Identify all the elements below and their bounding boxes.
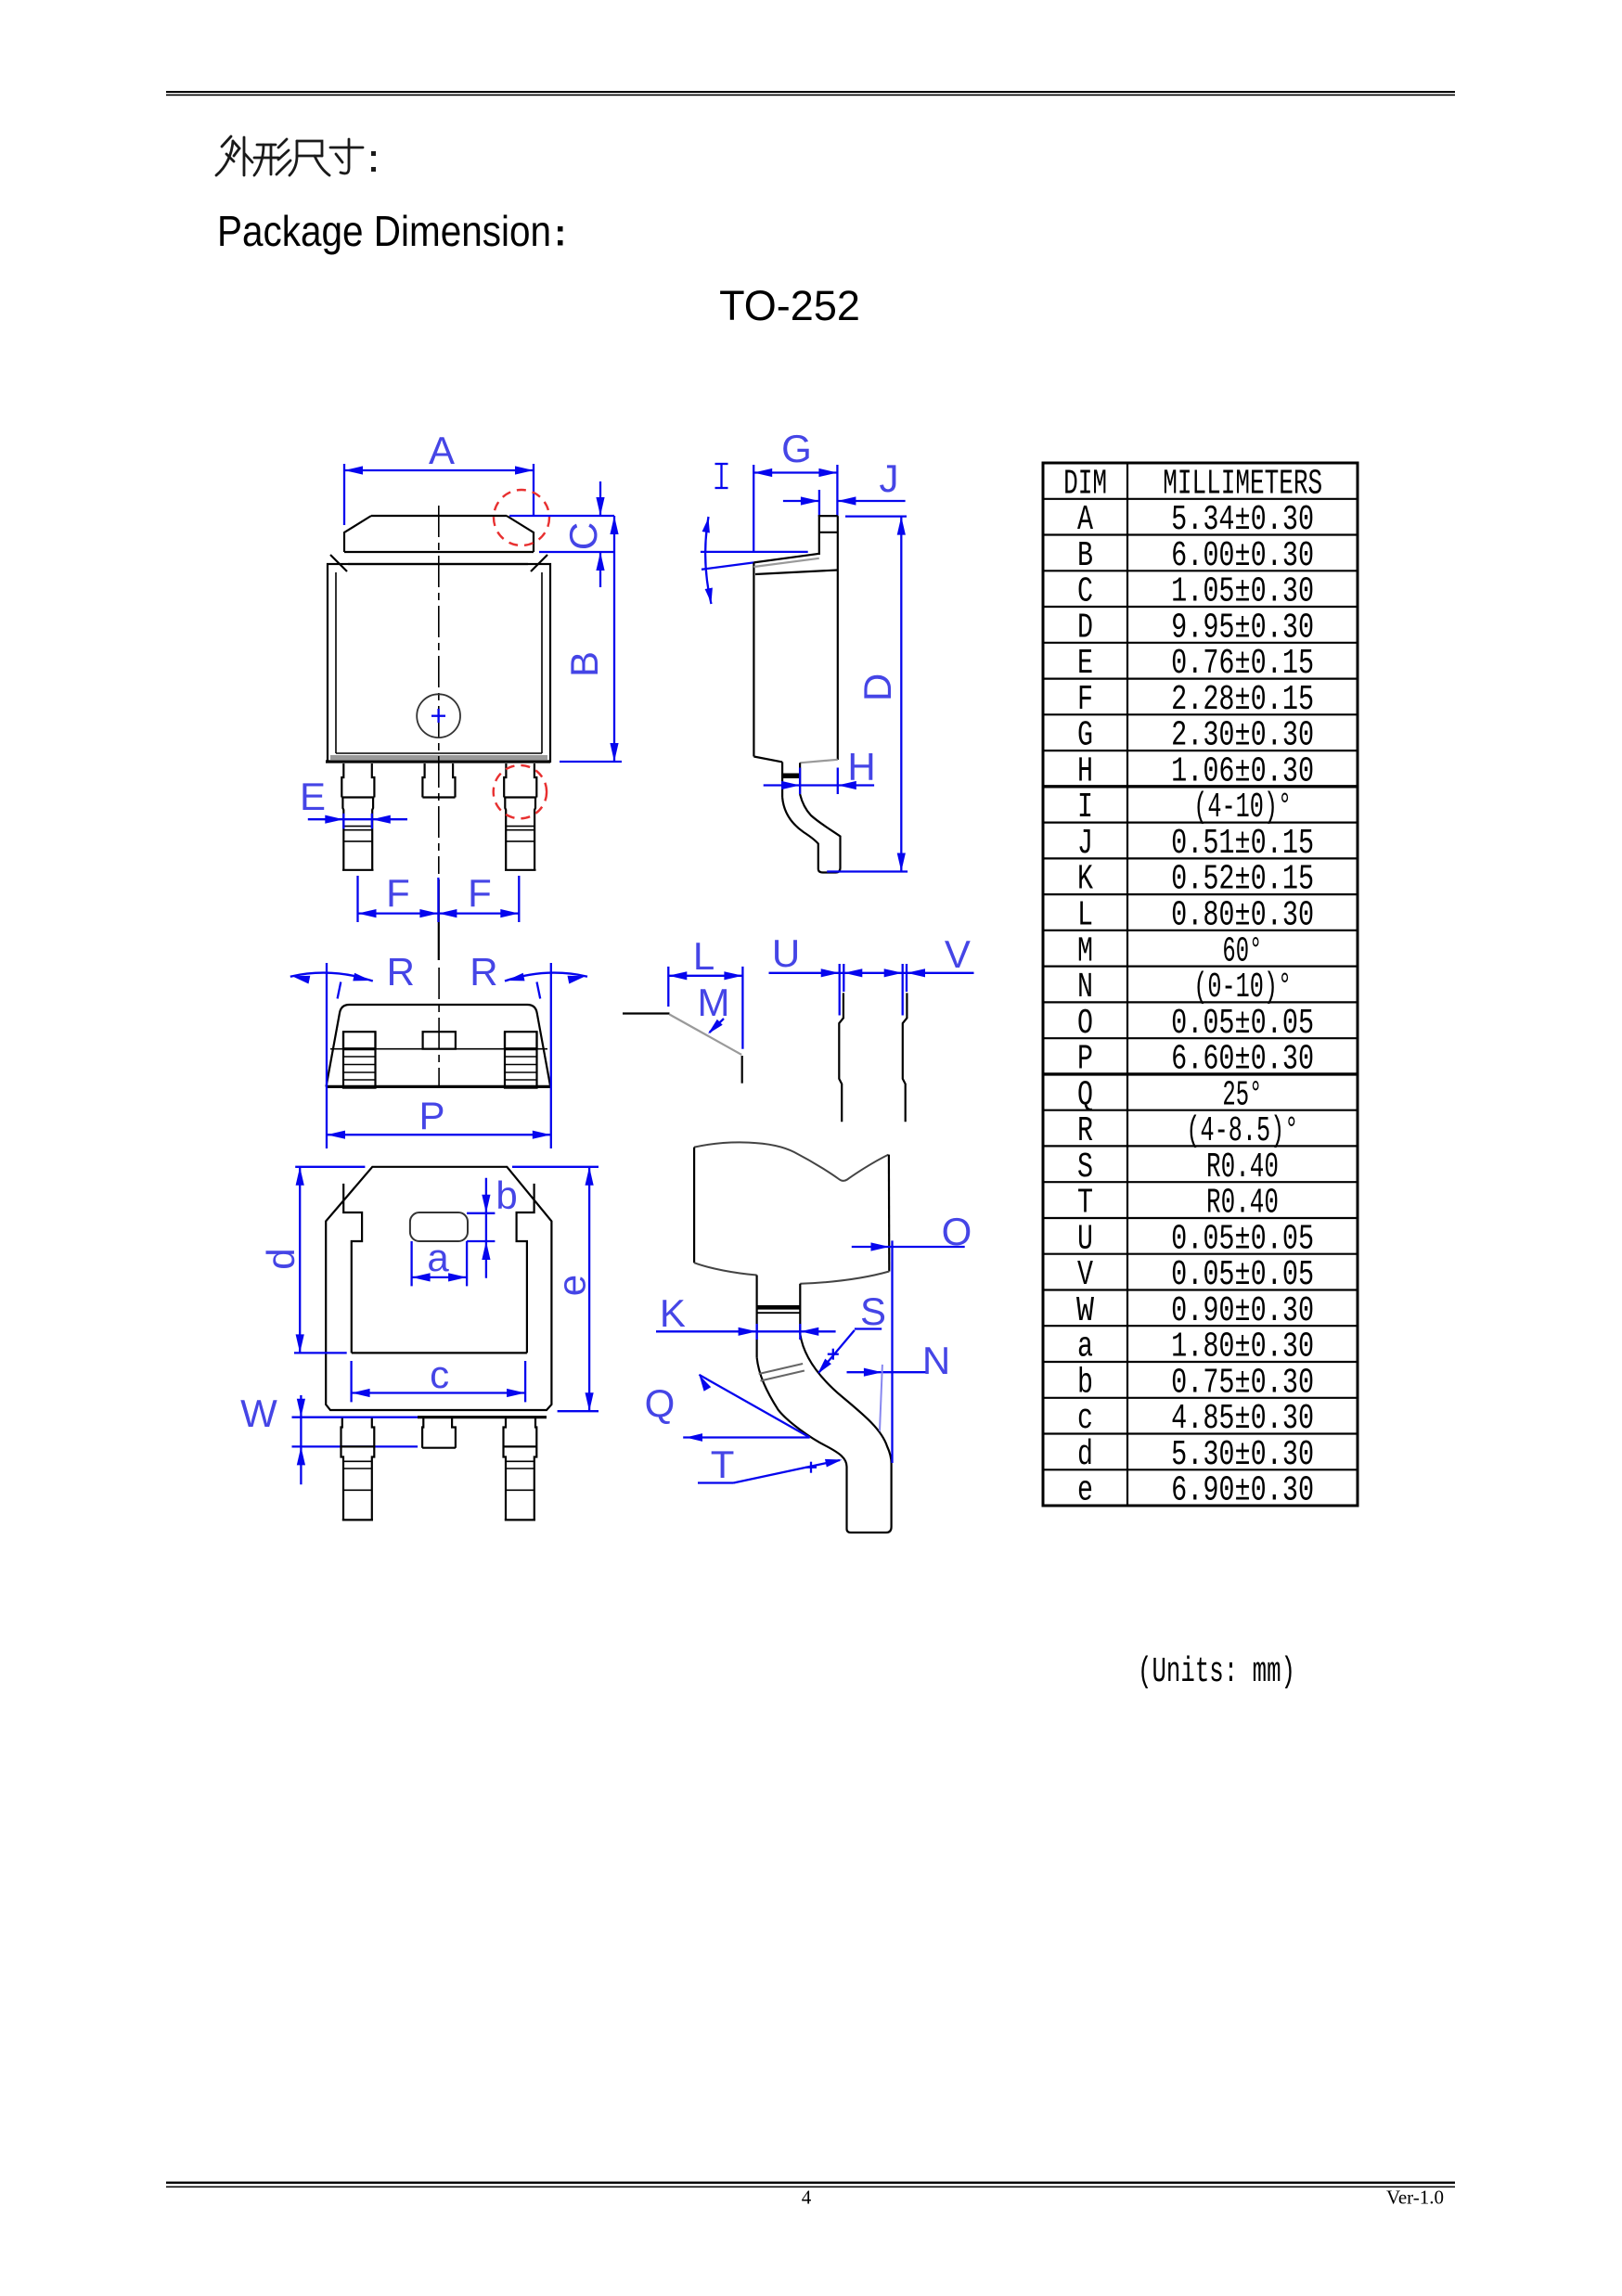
svg-text:D: D xyxy=(856,673,899,701)
svg-text:K: K xyxy=(660,1291,686,1335)
svg-text:G: G xyxy=(781,427,812,470)
svg-text:TO-252: TO-252 xyxy=(719,282,860,329)
svg-text:N: N xyxy=(1077,968,1093,1007)
svg-text:0.90±0.30: 0.90±0.30 xyxy=(1171,1291,1314,1331)
svg-text:D: D xyxy=(1077,608,1093,648)
svg-text:d: d xyxy=(259,1248,303,1269)
svg-text:5.34±0.30: 5.34±0.30 xyxy=(1171,500,1314,540)
svg-text:(Units: mm): (Units: mm) xyxy=(1138,1652,1295,1692)
svg-text:Package Dimension: Package Dimension xyxy=(217,207,551,255)
svg-text:J: J xyxy=(880,456,899,500)
svg-text:4: 4 xyxy=(802,2187,812,2209)
svg-text:MILLIMETERS: MILLIMETERS xyxy=(1163,464,1322,504)
svg-text:0.05±0.05: 0.05±0.05 xyxy=(1171,1004,1314,1044)
svg-text:V: V xyxy=(945,932,971,976)
svg-text:R0.40: R0.40 xyxy=(1206,1184,1279,1224)
svg-text:2.30±0.30: 2.30±0.30 xyxy=(1171,716,1314,756)
svg-text:b: b xyxy=(496,1174,517,1217)
svg-text:I: I xyxy=(1077,788,1093,827)
svg-text:R: R xyxy=(470,950,497,994)
svg-text:DIM: DIM xyxy=(1063,464,1107,504)
svg-text:E: E xyxy=(1077,644,1093,684)
svg-text:S: S xyxy=(1077,1148,1093,1187)
svg-text:d: d xyxy=(1077,1435,1093,1475)
svg-text:6.60±0.30: 6.60±0.30 xyxy=(1171,1040,1314,1080)
svg-text:E: E xyxy=(300,775,326,818)
svg-text:U: U xyxy=(1077,1219,1093,1259)
svg-text:0.05±0.05: 0.05±0.05 xyxy=(1171,1255,1314,1295)
svg-text:R0.40: R0.40 xyxy=(1206,1148,1279,1187)
svg-text:1.80±0.30: 1.80±0.30 xyxy=(1171,1328,1314,1367)
svg-text:a: a xyxy=(1077,1328,1093,1367)
svg-text:M: M xyxy=(1077,931,1093,971)
svg-text:A: A xyxy=(1077,500,1093,540)
svg-text:e: e xyxy=(549,1275,593,1296)
svg-text:V: V xyxy=(1077,1255,1093,1295)
svg-text:(4-10)°: (4-10)° xyxy=(1193,788,1292,827)
svg-text:S: S xyxy=(860,1289,886,1333)
svg-text:0.51±0.15: 0.51±0.15 xyxy=(1171,824,1314,864)
svg-text:R: R xyxy=(1077,1111,1093,1151)
svg-text:60°: 60° xyxy=(1222,931,1262,971)
svg-text:0.75±0.30: 0.75±0.30 xyxy=(1171,1363,1314,1403)
svg-text:(4-8.5)°: (4-8.5)° xyxy=(1186,1111,1298,1151)
svg-text:N: N xyxy=(922,1339,950,1382)
svg-text:Q: Q xyxy=(645,1381,676,1425)
svg-text:F: F xyxy=(386,871,410,915)
svg-text:T: T xyxy=(711,1443,735,1486)
svg-text:L: L xyxy=(693,934,714,978)
svg-text:P: P xyxy=(1077,1040,1093,1080)
svg-text:9.95±0.30: 9.95±0.30 xyxy=(1171,608,1314,648)
svg-text:H: H xyxy=(847,745,875,789)
svg-text:6.90±0.30: 6.90±0.30 xyxy=(1171,1471,1314,1511)
svg-text:e: e xyxy=(1077,1471,1093,1511)
svg-text:2.28±0.15: 2.28±0.15 xyxy=(1171,680,1314,720)
svg-text:O: O xyxy=(1077,1004,1093,1044)
svg-text:L: L xyxy=(1077,896,1093,936)
svg-text:B: B xyxy=(562,651,606,677)
svg-text:W: W xyxy=(1076,1291,1094,1331)
svg-text:0.80±0.30: 0.80±0.30 xyxy=(1171,896,1314,936)
svg-text:(0-10)°: (0-10)° xyxy=(1193,968,1292,1007)
svg-text:P: P xyxy=(418,1094,444,1137)
svg-text:1.06±0.30: 1.06±0.30 xyxy=(1171,752,1314,792)
svg-text:T: T xyxy=(1077,1184,1093,1224)
svg-text:c: c xyxy=(1077,1399,1093,1439)
svg-text:J: J xyxy=(1077,824,1093,864)
svg-text:Ver-1.0: Ver-1.0 xyxy=(1386,2187,1444,2209)
svg-text:0.76±0.15: 0.76±0.15 xyxy=(1171,644,1314,684)
svg-text:G: G xyxy=(1077,716,1093,756)
svg-text:5.30±0.30: 5.30±0.30 xyxy=(1171,1435,1314,1475)
svg-text:6.00±0.30: 6.00±0.30 xyxy=(1171,536,1314,576)
svg-text:0.52±0.15: 0.52±0.15 xyxy=(1171,860,1314,900)
svg-text:R: R xyxy=(387,950,415,994)
svg-text:W: W xyxy=(240,1392,277,1435)
svg-text:Q: Q xyxy=(1077,1075,1093,1115)
svg-text:F: F xyxy=(1077,680,1093,720)
svg-text:1.05±0.30: 1.05±0.30 xyxy=(1171,572,1314,612)
svg-text:C: C xyxy=(561,522,605,550)
svg-text:H: H xyxy=(1077,752,1093,792)
svg-text:0.05±0.05: 0.05±0.05 xyxy=(1171,1219,1314,1259)
svg-text:A: A xyxy=(429,429,455,472)
svg-text:a: a xyxy=(427,1236,449,1279)
svg-text:F: F xyxy=(468,871,492,915)
svg-text:B: B xyxy=(1077,536,1093,576)
svg-text:O: O xyxy=(942,1210,972,1253)
svg-text:M: M xyxy=(698,981,730,1024)
svg-text:C: C xyxy=(1077,572,1093,612)
svg-text:4.85±0.30: 4.85±0.30 xyxy=(1171,1399,1314,1439)
svg-text:25°: 25° xyxy=(1222,1075,1262,1115)
svg-text:b: b xyxy=(1077,1363,1093,1403)
svg-text:K: K xyxy=(1077,860,1093,900)
svg-text:U: U xyxy=(772,931,800,975)
svg-text:c: c xyxy=(430,1353,449,1396)
